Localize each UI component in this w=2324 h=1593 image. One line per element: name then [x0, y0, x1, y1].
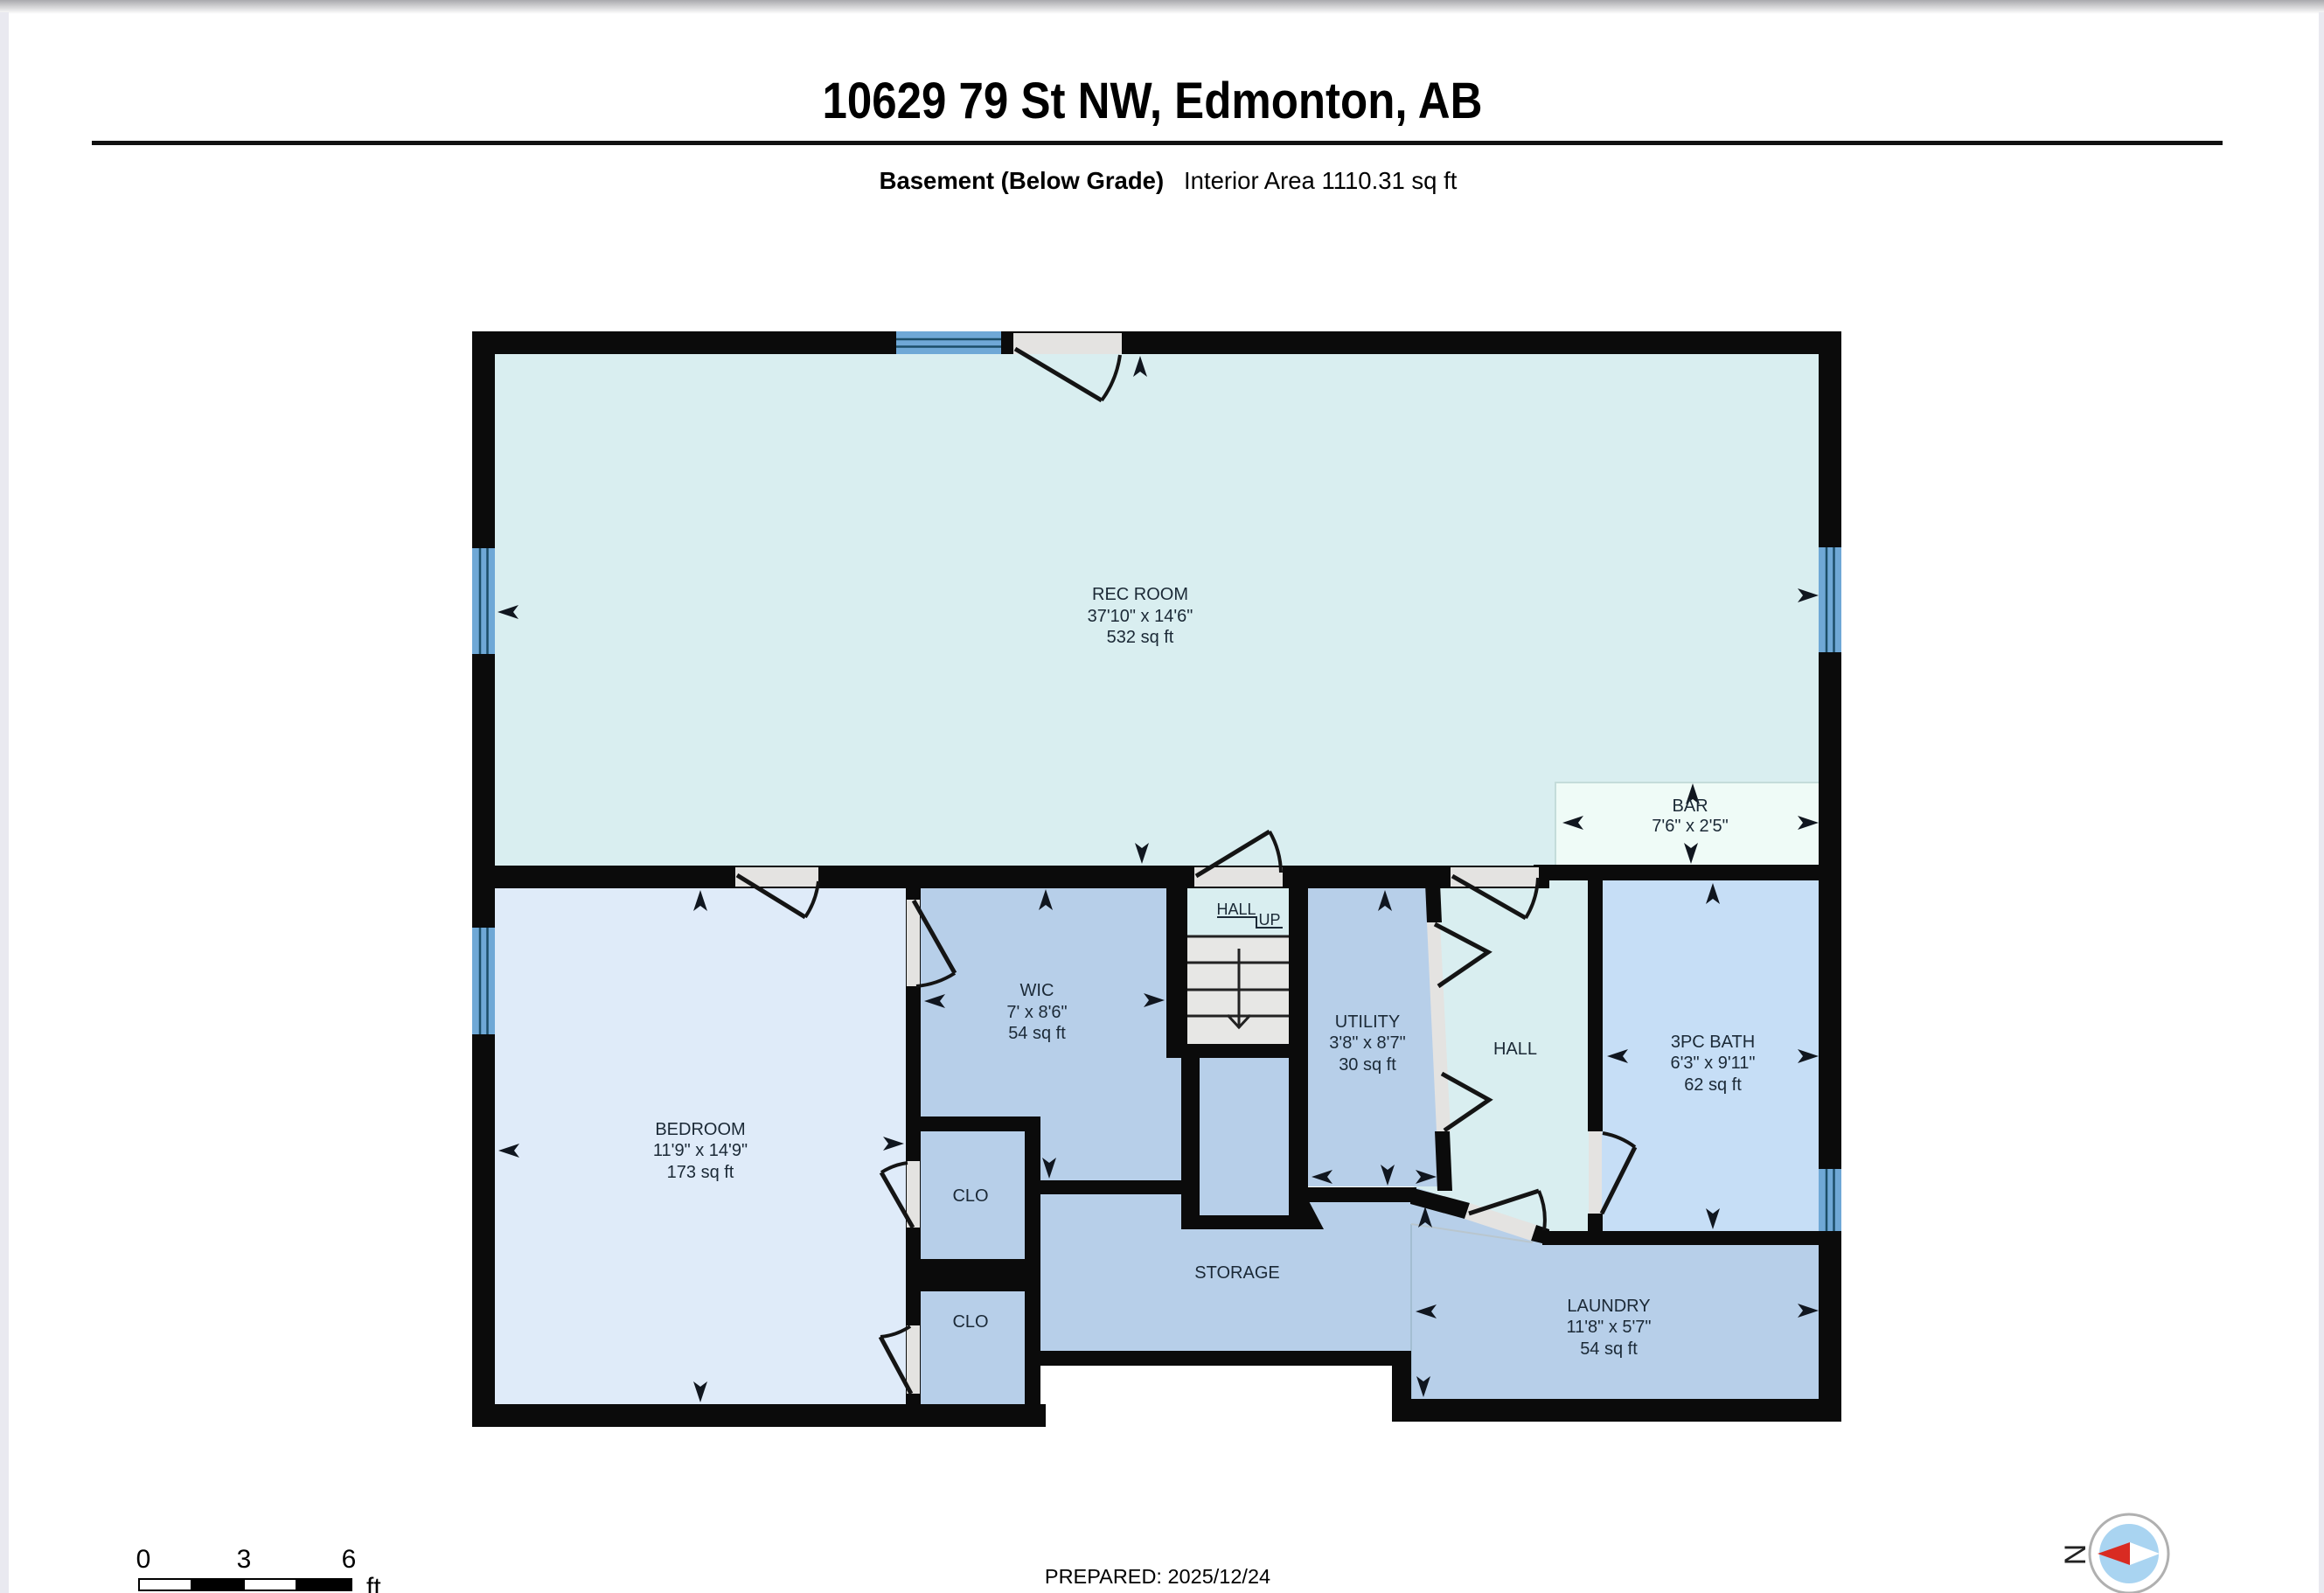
- svg-text:30 sq ft: 30 sq ft: [1339, 1055, 1396, 1075]
- svg-text:54 sq ft: 54 sq ft: [1008, 1024, 1066, 1043]
- svg-text:BEDROOM: BEDROOM: [655, 1120, 745, 1139]
- svg-text:532 sq ft: 532 sq ft: [1107, 628, 1174, 647]
- svg-text:54 sq ft: 54 sq ft: [1580, 1339, 1638, 1359]
- svg-text:HALL: HALL: [1216, 901, 1256, 918]
- svg-text:11'9" x 14'9": 11'9" x 14'9": [653, 1141, 748, 1160]
- svg-text:7'6" x 2'5": 7'6" x 2'5": [1652, 817, 1728, 836]
- svg-text:UP: UP: [1258, 911, 1280, 929]
- svg-text:3: 3: [237, 1545, 252, 1574]
- svg-text:0: 0: [136, 1545, 151, 1574]
- svg-text:3PC BATH: 3PC BATH: [1671, 1033, 1755, 1052]
- svg-text:UTILITY: UTILITY: [1335, 1012, 1400, 1032]
- svg-text:N: N: [2059, 1544, 2092, 1566]
- svg-text:6: 6: [342, 1545, 357, 1574]
- svg-text:10629 79 St NW, Edmonton, AB: 10629 79 St NW, Edmonton, AB: [823, 73, 1483, 129]
- svg-text:PREPARED: 2025/12/24: PREPARED: 2025/12/24: [1045, 1565, 1270, 1588]
- svg-text:CLO: CLO: [952, 1312, 988, 1332]
- svg-text:62 sq ft: 62 sq ft: [1684, 1075, 1742, 1095]
- svg-text:Basement (Below Grade) Inter: Basement (Below Grade) Interior Area 111…: [880, 167, 1458, 194]
- svg-text:6'3" x 9'11": 6'3" x 9'11": [1670, 1054, 1755, 1073]
- svg-text:CLO: CLO: [952, 1186, 988, 1206]
- svg-text:37'10" x 14'6": 37'10" x 14'6": [1088, 607, 1193, 626]
- svg-text:7' x 8'6": 7' x 8'6": [1006, 1003, 1067, 1022]
- svg-text:LAUNDRY: LAUNDRY: [1567, 1297, 1650, 1316]
- svg-text:3'8" x 8'7": 3'8" x 8'7": [1329, 1033, 1405, 1053]
- svg-text:BAR: BAR: [1672, 796, 1708, 816]
- svg-text:ft: ft: [366, 1573, 381, 1593]
- svg-text:STORAGE: STORAGE: [1194, 1263, 1279, 1283]
- svg-text:REC ROOM: REC ROOM: [1092, 585, 1188, 604]
- svg-text:173 sq ft: 173 sq ft: [667, 1163, 734, 1182]
- svg-text:11'8" x 5'7": 11'8" x 5'7": [1566, 1318, 1651, 1337]
- svg-text:HALL: HALL: [1493, 1040, 1537, 1059]
- svg-text:WIC: WIC: [1020, 981, 1054, 1000]
